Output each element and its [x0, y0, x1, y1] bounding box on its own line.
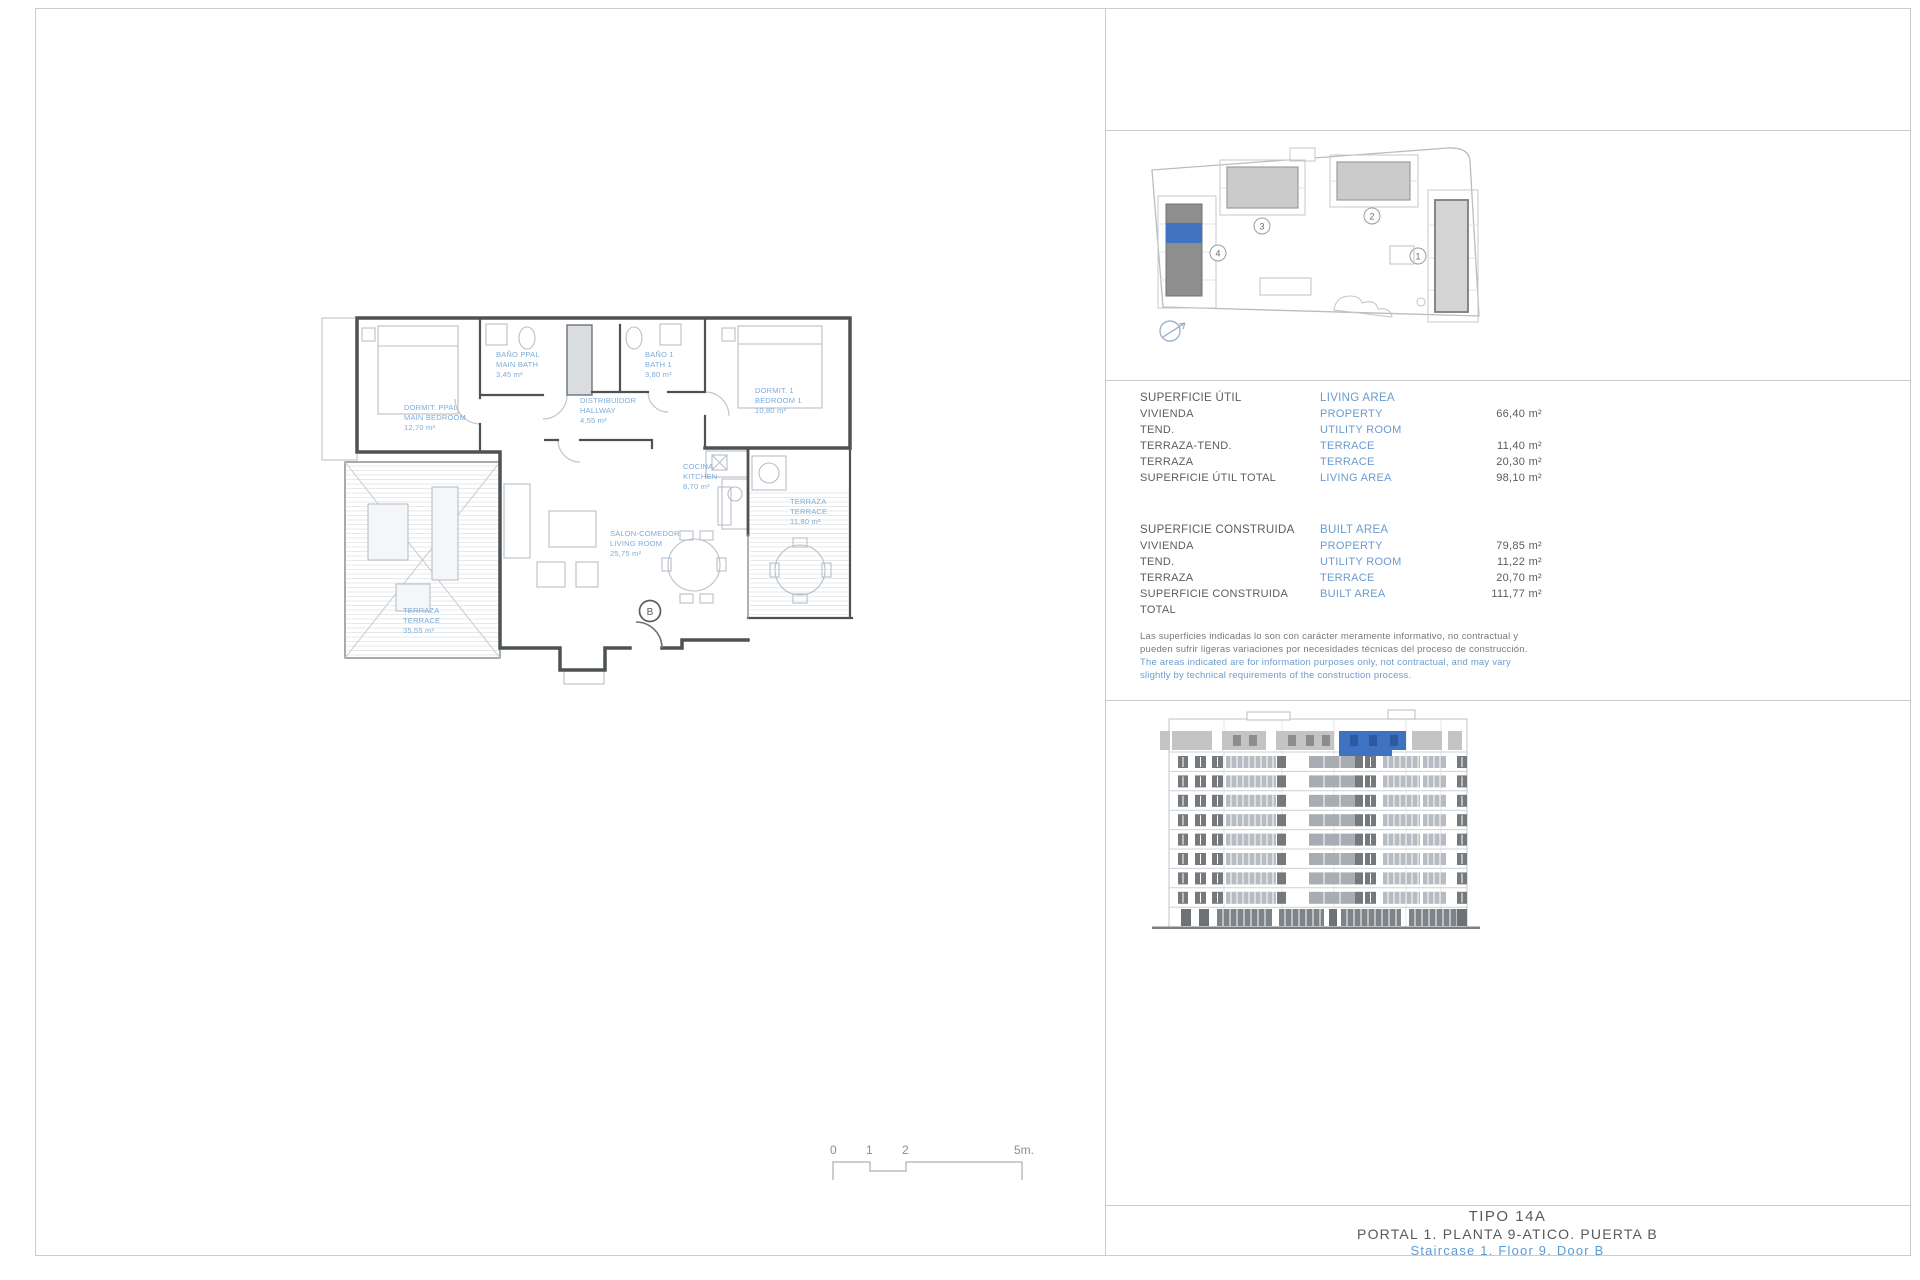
cell-en: TERRACE — [1320, 438, 1474, 454]
svg-text:TERRAZA: TERRAZA — [403, 606, 439, 615]
svg-text:DORMIT. PPAL: DORMIT. PPAL — [404, 403, 458, 412]
disclaimer-en: The areas indicated are for information … — [1140, 656, 1544, 682]
svg-text:10,80 m²: 10,80 m² — [755, 406, 786, 415]
svg-text:4: 4 — [1215, 249, 1220, 259]
room-label-hallway: DISTRIBUIDOR HALLWAY 4,55 m² — [580, 396, 637, 425]
cell-val — [1474, 422, 1542, 438]
plan-sheet: B DORMIT. PPAL MAIN BEDROOM 12,70 m² BAÑ… — [0, 0, 1920, 1280]
cell-es: SUPERFICIE CONSTRUIDA TOTAL — [1140, 586, 1320, 618]
door-b-label: B — [647, 607, 654, 618]
svg-text:LIVING ROOM: LIVING ROOM — [610, 539, 662, 548]
table-built-area: SUPERFICIE CONSTRUIDA BUILT AREA VIVIEND… — [1140, 522, 1542, 618]
cell-en: UTILITY ROOM — [1320, 422, 1474, 438]
cell-val: 66,40 m² — [1474, 406, 1542, 422]
cell-es: TERRAZA-TEND. — [1140, 438, 1320, 454]
section-line-2 — [1105, 380, 1910, 381]
disclaimer: Las superficies indicadas lo son con car… — [1140, 630, 1544, 682]
svg-text:DORMIT. 1: DORMIT. 1 — [755, 386, 794, 395]
svg-text:25,75 m²: 25,75 m² — [610, 549, 641, 558]
cell-en: UTILITY ROOM — [1320, 554, 1474, 570]
svg-text:KITCHEN: KITCHEN — [683, 472, 717, 481]
plot-notch — [1290, 148, 1315, 161]
floor-plan-drawing: B DORMIT. PPAL MAIN BEDROOM 12,70 m² BAÑ… — [300, 300, 900, 690]
table-row: VIVIENDA PROPERTY 66,40 m² — [1140, 406, 1542, 422]
cell-en: LIVING AREA — [1320, 470, 1474, 486]
svg-text:HALLWAY: HALLWAY — [580, 406, 616, 415]
cell-en: PROPERTY — [1320, 538, 1474, 554]
svg-text:TERRACE: TERRACE — [403, 616, 440, 625]
svg-text:SALON-COMEDOR: SALON-COMEDOR — [610, 529, 680, 538]
cell-es: TEND. — [1140, 554, 1320, 570]
svg-text:2: 2 — [1369, 212, 1374, 222]
scale-0: 0 — [830, 1143, 837, 1157]
room-label-main-bedroom: DORMIT. PPAL MAIN BEDROOM 12,70 m² — [404, 403, 466, 432]
scale-bar: 0 1 2 5m. — [815, 1130, 1055, 1195]
cell-val: 79,85 m² — [1474, 538, 1542, 554]
table-row: SUPERFICIE CONSTRUIDA BUILT AREA — [1140, 522, 1542, 538]
plan-location-en: Staircase 1. Floor 9. Door B — [1105, 1243, 1910, 1258]
svg-text:TERRACE: TERRACE — [790, 507, 827, 516]
cell-en: PROPERTY — [1320, 406, 1474, 422]
site-highlight-unit — [1166, 223, 1202, 243]
cell-val: 111,77 m² — [1474, 586, 1542, 618]
cell-val: 11,40 m² — [1474, 438, 1542, 454]
table-row: TEND. UTILITY ROOM 11,22 m² — [1140, 554, 1542, 570]
table-row: TEND. UTILITY ROOM — [1140, 422, 1542, 438]
cell-es: VIVIENDA — [1140, 406, 1320, 422]
table-title-es: SUPERFICIE CONSTRUIDA — [1140, 522, 1320, 538]
table-living-area: SUPERFICIE ÚTIL LIVING AREA VIVIENDA PRO… — [1140, 390, 1542, 486]
plan-type-title: TIPO 14A — [1105, 1208, 1910, 1225]
svg-text:3,45 m²: 3,45 m² — [496, 370, 523, 379]
table-row: SUPERFICIE ÚTIL TOTAL LIVING AREA 98,10 … — [1140, 470, 1542, 486]
elevation-highlight-windows — [1350, 735, 1398, 746]
svg-text:BAÑO 1: BAÑO 1 — [645, 350, 674, 359]
cell-en: BUILT AREA — [1320, 586, 1474, 618]
svg-text:3: 3 — [1259, 222, 1264, 232]
scale-2: 2 — [902, 1143, 909, 1157]
cell-en: TERRACE — [1320, 570, 1474, 586]
service-shaft — [567, 325, 592, 395]
cell-es: VIVIENDA — [1140, 538, 1320, 554]
compass-icon — [1160, 321, 1185, 341]
room-label-terrace-left: TERRAZA TERRACE 35,55 m² — [403, 606, 440, 635]
table-row: TERRAZA-TEND. TERRACE 11,40 m² — [1140, 438, 1542, 454]
cell-en: TERRACE — [1320, 454, 1474, 470]
svg-text:DISTRIBUIDOR: DISTRIBUIDOR — [580, 396, 637, 405]
svg-text:BATH 1: BATH 1 — [645, 360, 672, 369]
elevation-drawing — [1152, 710, 1480, 929]
elevation-highlight-lip — [1339, 750, 1392, 756]
site-plan: 3 2 4 1 — [1105, 130, 1515, 350]
room-label-kitchen: COCINA KITCHEN 8,70 m² — [683, 462, 717, 491]
table-title-en: BUILT AREA — [1320, 522, 1474, 538]
svg-text:MAIN BATH: MAIN BATH — [496, 360, 538, 369]
table-row: SUPERFICIE ÚTIL LIVING AREA — [1140, 390, 1542, 406]
cell-es: TERRAZA — [1140, 454, 1320, 470]
entrance-door-b: B — [636, 601, 662, 649]
scale-1: 1 — [866, 1143, 873, 1157]
svg-text:MAIN BEDROOM: MAIN BEDROOM — [404, 413, 466, 422]
svg-text:BEDROOM 1: BEDROOM 1 — [755, 396, 802, 405]
table-row: VIVIENDA PROPERTY 79,85 m² — [1140, 538, 1542, 554]
table-title-es: SUPERFICIE ÚTIL — [1140, 390, 1320, 406]
cell-es: TERRAZA — [1140, 570, 1320, 586]
site-building-4: 4 — [1158, 196, 1226, 308]
svg-text:TERRAZA: TERRAZA — [790, 497, 826, 506]
scale-5m: 5m. — [1014, 1143, 1034, 1157]
room-label-bedroom-1: DORMIT. 1 BEDROOM 1 10,80 m² — [755, 386, 802, 415]
building-elevation — [1105, 700, 1500, 940]
svg-text:11,80 m²: 11,80 m² — [790, 517, 821, 526]
svg-text:4,55 m²: 4,55 m² — [580, 416, 607, 425]
room-label-bath-1: BAÑO 1 BATH 1 3,80 m² — [645, 350, 674, 379]
cell-es: SUPERFICIE ÚTIL TOTAL — [1140, 470, 1320, 486]
side-lattice-strip — [322, 318, 357, 460]
room-label-living-room: SALON-COMEDOR LIVING ROOM 25,75 m² — [610, 529, 680, 558]
cell-es: TEND. — [1140, 422, 1320, 438]
svg-text:COCINA: COCINA — [683, 462, 713, 471]
table-row: TERRAZA TERRACE 20,30 m² — [1140, 454, 1542, 470]
cell-val: 11,22 m² — [1474, 554, 1542, 570]
table-row: SUPERFICIE CONSTRUIDA TOTAL BUILT AREA 1… — [1140, 586, 1542, 618]
table-title-en: LIVING AREA — [1320, 390, 1474, 406]
svg-text:3,80 m²: 3,80 m² — [645, 370, 672, 379]
svg-text:8,70 m²: 8,70 m² — [683, 482, 710, 491]
svg-text:BAÑO PPAL: BAÑO PPAL — [496, 350, 540, 359]
cell-val: 98,10 m² — [1474, 470, 1542, 486]
svg-text:1: 1 — [1415, 252, 1420, 262]
scale-bar-glyph — [833, 1162, 1022, 1180]
plan-location-es: PORTAL 1. PLANTA 9-ATICO. PUERTA B — [1105, 1226, 1910, 1242]
disclaimer-es: Las superficies indicadas lo son con car… — [1140, 630, 1544, 656]
room-label-terrace-right: TERRAZA TERRACE 11,80 m² — [790, 497, 827, 526]
cell-val: 20,30 m² — [1474, 454, 1542, 470]
svg-text:12,70 m²: 12,70 m² — [404, 423, 435, 432]
section-line-4 — [1105, 1205, 1910, 1206]
cell-val: 20,70 m² — [1474, 570, 1542, 586]
table-row: TERRAZA TERRACE 20,70 m² — [1140, 570, 1542, 586]
svg-text:35,55 m²: 35,55 m² — [403, 626, 434, 635]
title-block: TIPO 14A PORTAL 1. PLANTA 9-ATICO. PUERT… — [1105, 1208, 1910, 1258]
room-label-main-bath: BAÑO PPAL MAIN BATH 3,45 m² — [496, 350, 540, 379]
